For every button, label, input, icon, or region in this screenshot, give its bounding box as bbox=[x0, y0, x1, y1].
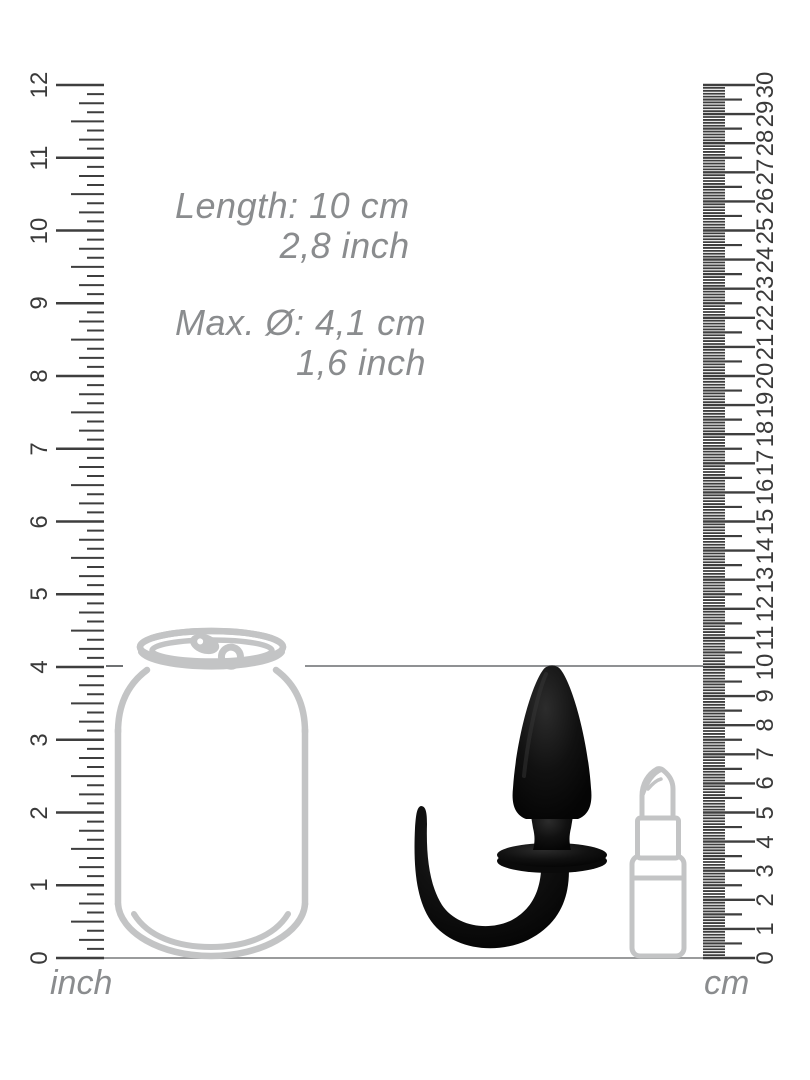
cm-ruler-number: 17 bbox=[752, 450, 780, 477]
diameter-metric-text: Max. Ø: 4,1 cm bbox=[175, 303, 426, 343]
inch-ruler-number: 6 bbox=[26, 515, 54, 528]
inch-ruler-number: 4 bbox=[26, 660, 54, 673]
cm-ruler-number: 30 bbox=[752, 72, 780, 99]
cm-ruler-number: 2 bbox=[752, 893, 780, 906]
cm-ruler-number: 3 bbox=[752, 864, 780, 877]
inch-ruler-number: 3 bbox=[26, 733, 54, 746]
cm-ruler-number: 15 bbox=[752, 508, 780, 535]
cm-ruler-number: 9 bbox=[752, 689, 780, 702]
cm-ruler-number: 24 bbox=[752, 246, 780, 273]
cm-ruler-number: 25 bbox=[752, 217, 780, 244]
cm-ruler-number: 22 bbox=[752, 304, 780, 331]
diameter-imperial-text: 1,6 inch bbox=[175, 343, 426, 383]
inch-ruler-number: 1 bbox=[26, 879, 54, 892]
inch-ruler-number: 2 bbox=[26, 806, 54, 819]
cm-ruler-number: 14 bbox=[752, 537, 780, 564]
inch-ruler-number: 8 bbox=[26, 369, 54, 382]
cm-ruler-number: 18 bbox=[752, 421, 780, 448]
cm-ruler-number: 13 bbox=[752, 566, 780, 593]
cm-ruler-number: 7 bbox=[752, 748, 780, 761]
cm-ruler-number: 26 bbox=[752, 188, 780, 215]
inch-ruler-number: 9 bbox=[26, 297, 54, 310]
cm-ruler-number: 20 bbox=[752, 363, 780, 390]
soda-can-icon bbox=[108, 626, 318, 966]
inch-ruler-number: 0 bbox=[26, 951, 54, 964]
length-imperial-text: 2,8 inch bbox=[175, 226, 410, 266]
cm-ruler-number: 23 bbox=[752, 275, 780, 302]
cm-unit-label: cm bbox=[704, 964, 749, 1003]
cm-ruler-number: 27 bbox=[752, 159, 780, 186]
cm-ruler-number: 10 bbox=[752, 654, 780, 681]
cm-ruler-number: 21 bbox=[752, 334, 780, 361]
cm-ruler-number: 29 bbox=[752, 101, 780, 128]
inch-ruler-number: 12 bbox=[26, 72, 54, 99]
cm-ruler-number: 16 bbox=[752, 479, 780, 506]
lipstick-icon bbox=[626, 762, 690, 962]
cm-ruler-number: 0 bbox=[752, 951, 780, 964]
inch-ruler-number: 11 bbox=[26, 145, 54, 170]
inch-ruler-number: 5 bbox=[26, 588, 54, 601]
cm-ruler-number: 11 bbox=[752, 625, 780, 650]
length-spec: Length: 10 cm 2,8 inch bbox=[175, 186, 410, 266]
cm-ruler-number: 4 bbox=[752, 835, 780, 848]
product-plug-icon bbox=[400, 658, 615, 958]
cm-ruler-number: 19 bbox=[752, 392, 780, 419]
inch-ruler-number: 10 bbox=[26, 217, 54, 244]
cm-ruler-number: 8 bbox=[752, 719, 780, 732]
inch-unit-label: inch bbox=[50, 964, 112, 1003]
diameter-spec: Max. Ø: 4,1 cm 1,6 inch bbox=[175, 303, 426, 383]
length-metric-text: Length: 10 cm bbox=[175, 186, 410, 226]
cm-ruler-number: 6 bbox=[752, 777, 780, 790]
cm-ruler-number: 5 bbox=[752, 806, 780, 819]
cm-ruler-number: 28 bbox=[752, 130, 780, 157]
inch-ruler-number: 7 bbox=[26, 442, 54, 455]
cm-ruler-number: 1 bbox=[752, 922, 780, 935]
plug-cone bbox=[513, 666, 592, 820]
cm-ruler-number: 12 bbox=[752, 595, 780, 622]
product-size-chart: 0123456789101112 01234567891011121314151… bbox=[0, 0, 810, 1080]
